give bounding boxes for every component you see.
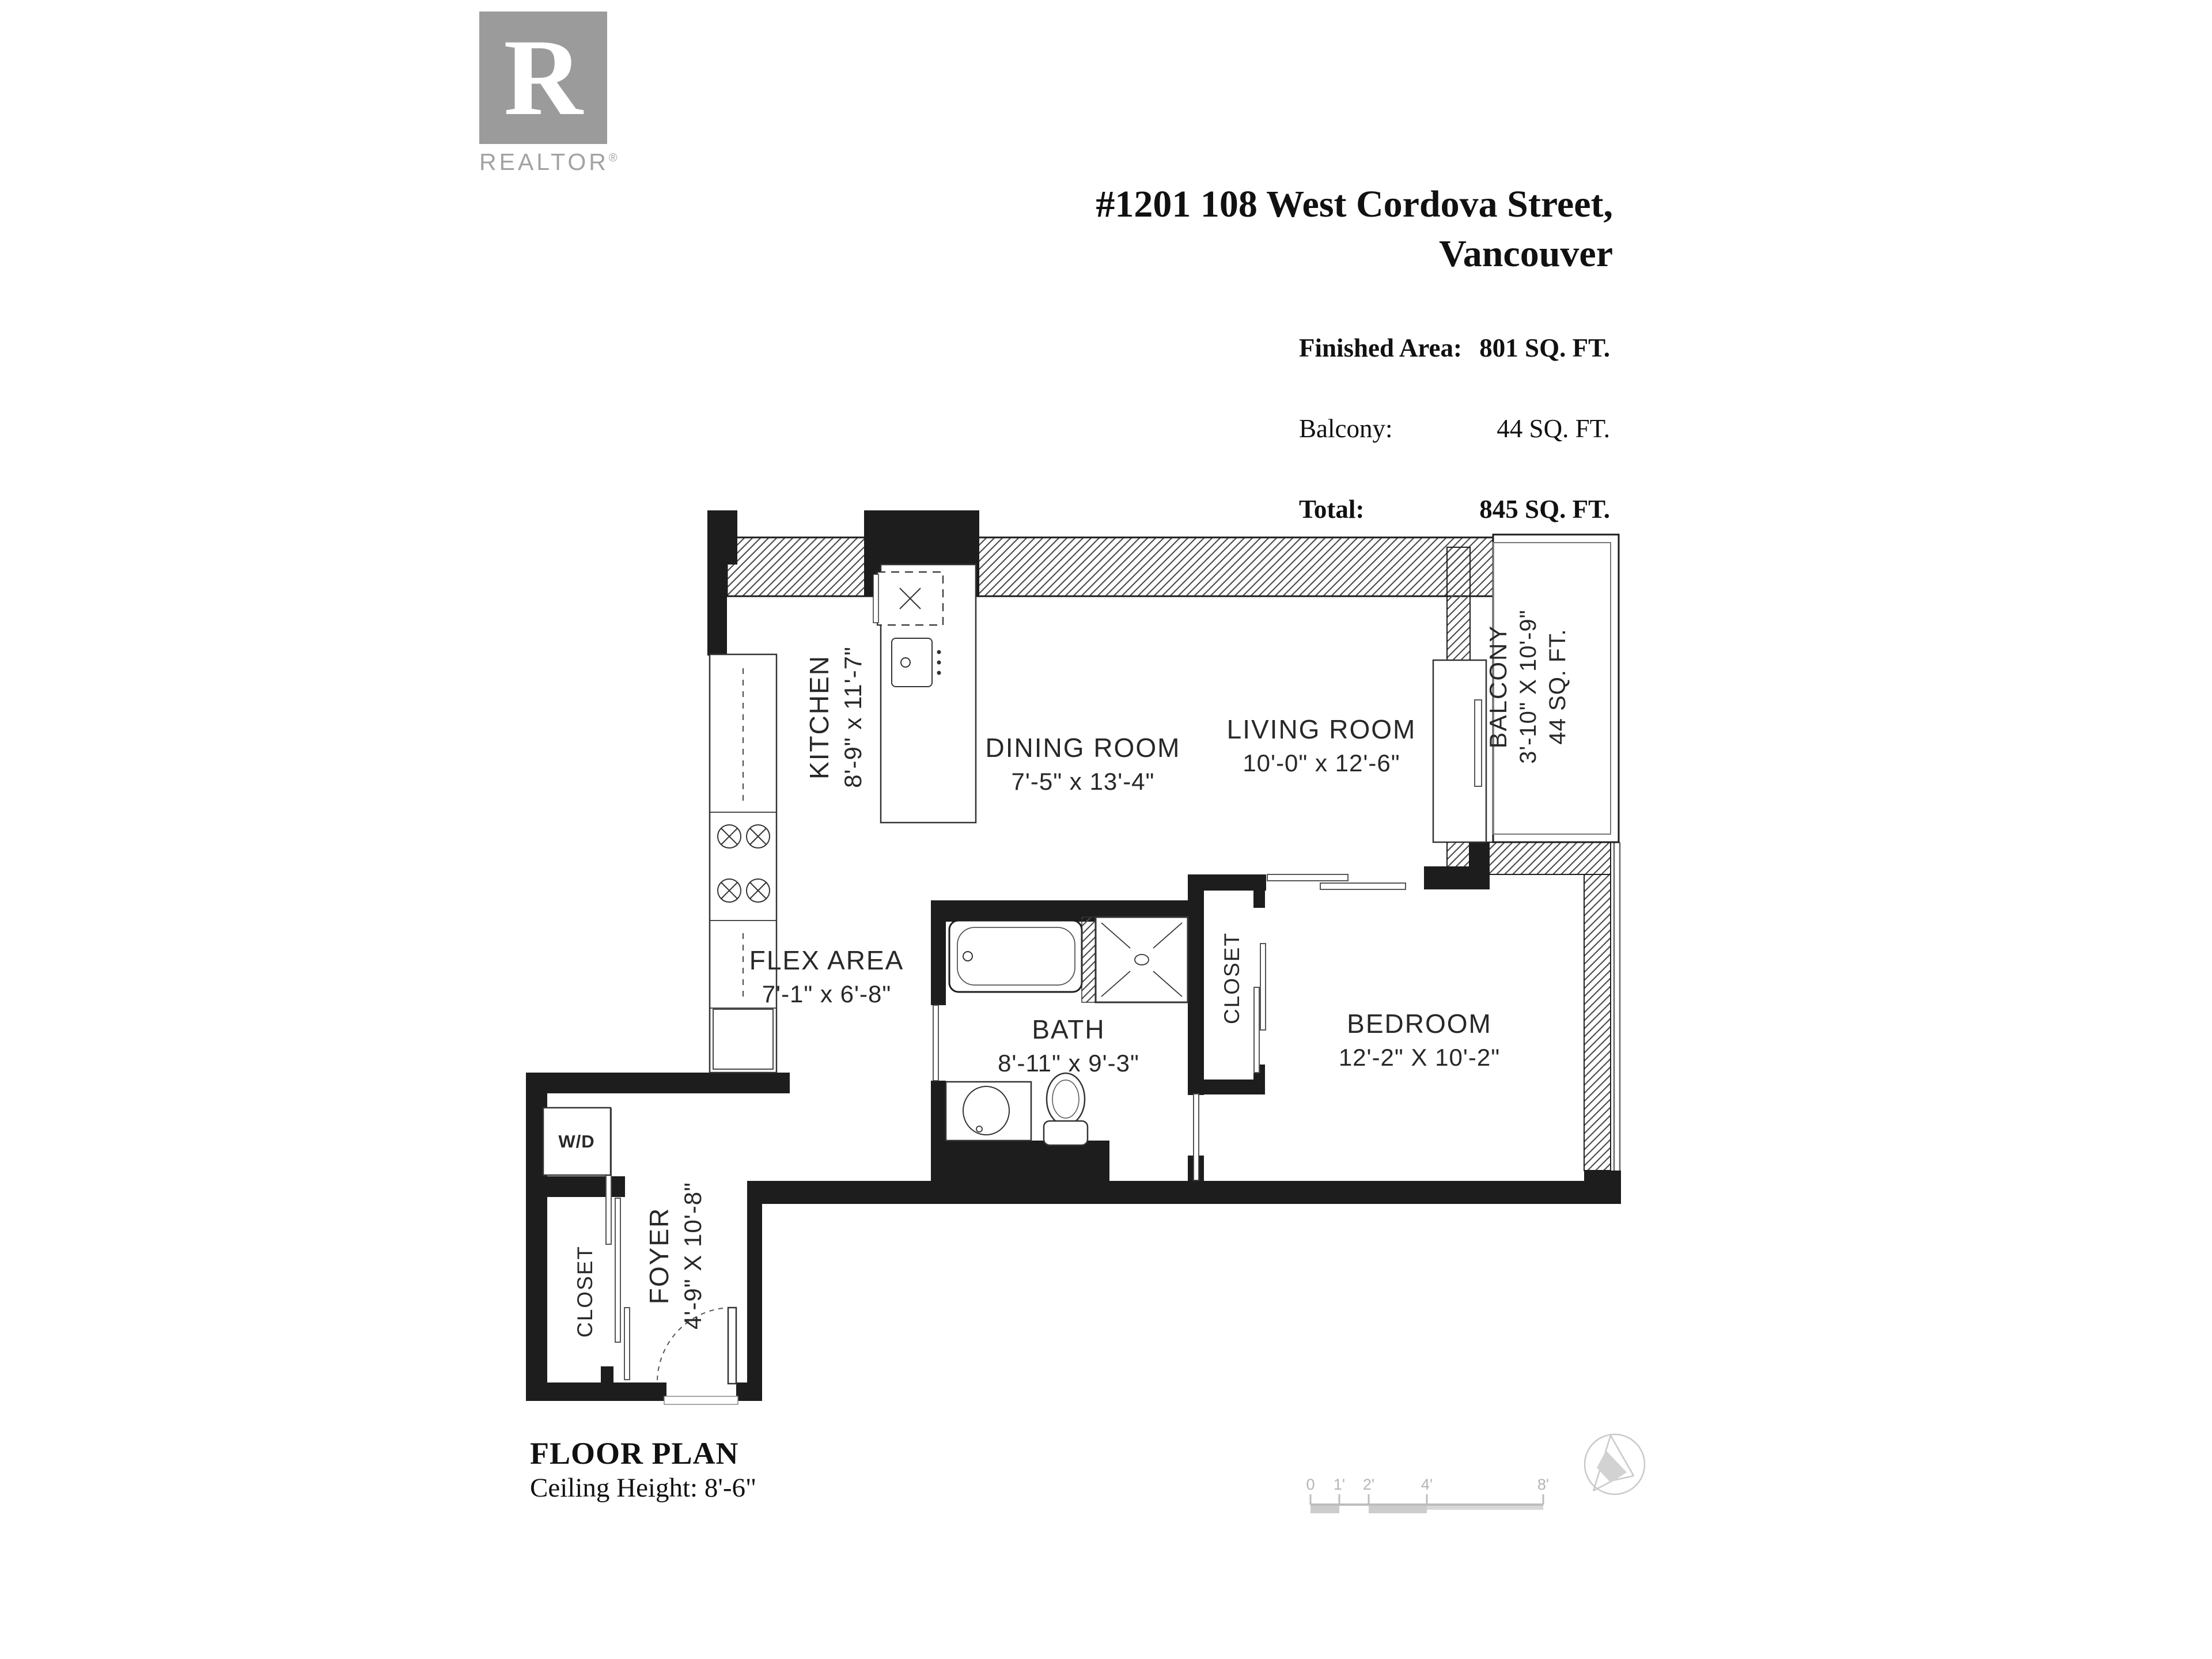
label-kitchen: KITCHEN 8'-9" x 11'-7"	[804, 646, 867, 788]
realtor-wordmark: REALTOR®	[479, 149, 629, 176]
label-bedroom-closet: CLOSET	[1220, 932, 1244, 1024]
stat-label: Balcony:	[1299, 414, 1392, 444]
realtor-logo-r: R	[503, 23, 582, 132]
scale-bar	[1310, 1494, 1543, 1513]
registered-mark: ®	[609, 151, 618, 164]
scale-tick-1: 1'	[1334, 1476, 1345, 1494]
label-foyer-closet: CLOSET	[573, 1245, 597, 1338]
shower-icon	[1096, 917, 1188, 1002]
kitchen-island	[873, 565, 976, 823]
kitchen-counter	[710, 654, 777, 1073]
stat-finished-area: Finished Area: 801 SQ. FT.	[1299, 333, 1610, 373]
area-stats: Finished Area: 801 SQ. FT. Balcony: 44 S…	[1299, 333, 1610, 575]
scale-tick-4: 4'	[1421, 1476, 1433, 1494]
label-dining-room: DINING ROOM 7'-5" x 13'-4"	[986, 732, 1181, 796]
bedroom-sliding-door-icon	[1267, 874, 1406, 889]
stat-label: Total:	[1299, 494, 1364, 524]
compass-icon	[1585, 1434, 1645, 1494]
label-foyer: FOYER 4'-9" X 10'-8"	[643, 1182, 707, 1330]
vanity-sink-icon	[946, 1082, 1031, 1141]
label-bath: BATH 8'-11" x 9'-3"	[998, 1014, 1139, 1077]
label-bedroom: BEDROOM 12'-2" X 10'-2"	[1339, 1008, 1500, 1071]
scale-tick-2: 2'	[1363, 1476, 1374, 1494]
stat-total: Total: 845 SQ. FT.	[1299, 494, 1610, 535]
label-living-room: LIVING ROOM 10'-0" x 12'-6"	[1227, 714, 1416, 777]
label-flex-area: FLEX AREA 7'-1" x 6'-8"	[749, 945, 904, 1008]
address-line-2: Vancouver	[1096, 229, 1613, 279]
stat-value: 845 SQ. FT.	[1479, 494, 1610, 524]
stat-value: 801 SQ. FT.	[1479, 333, 1610, 363]
bedroom-closet-sliding-door-icon	[1254, 944, 1266, 1073]
bath-door-leaf	[933, 1005, 938, 1081]
shower-divider	[1082, 917, 1096, 1002]
ceiling-height: Ceiling Height: 8'-6"	[530, 1472, 756, 1503]
label-washer-dryer: W/D	[558, 1131, 594, 1152]
address-line-1: #1201 108 West Cordova Street,	[1096, 180, 1613, 229]
floor-plan-sheet: R REALTOR® #1201 108 West Cordova Street…	[0, 0, 2212, 1659]
balcony-sliding-door-icon	[1433, 660, 1486, 842]
scale-tick-8: 8'	[1537, 1476, 1549, 1494]
label-balcony: BALCONY 3'-10" X 10'-9" 44 SQ. FT.	[1484, 609, 1571, 764]
floor-plan-title: FLOOR PLAN	[530, 1435, 739, 1471]
stat-balcony: Balcony: 44 SQ. FT.	[1299, 414, 1610, 454]
realtor-logo: R	[479, 12, 607, 144]
scale-tick-0: 0	[1306, 1476, 1315, 1494]
stat-value: 44 SQ. FT.	[1497, 414, 1610, 444]
bedroom-door-leaf	[1194, 1094, 1199, 1180]
stat-label: Finished Area:	[1299, 333, 1462, 363]
property-address: #1201 108 West Cordova Street, Vancouver	[1096, 180, 1613, 279]
toilet-icon	[1044, 1073, 1088, 1145]
bathtub-icon	[949, 921, 1082, 992]
